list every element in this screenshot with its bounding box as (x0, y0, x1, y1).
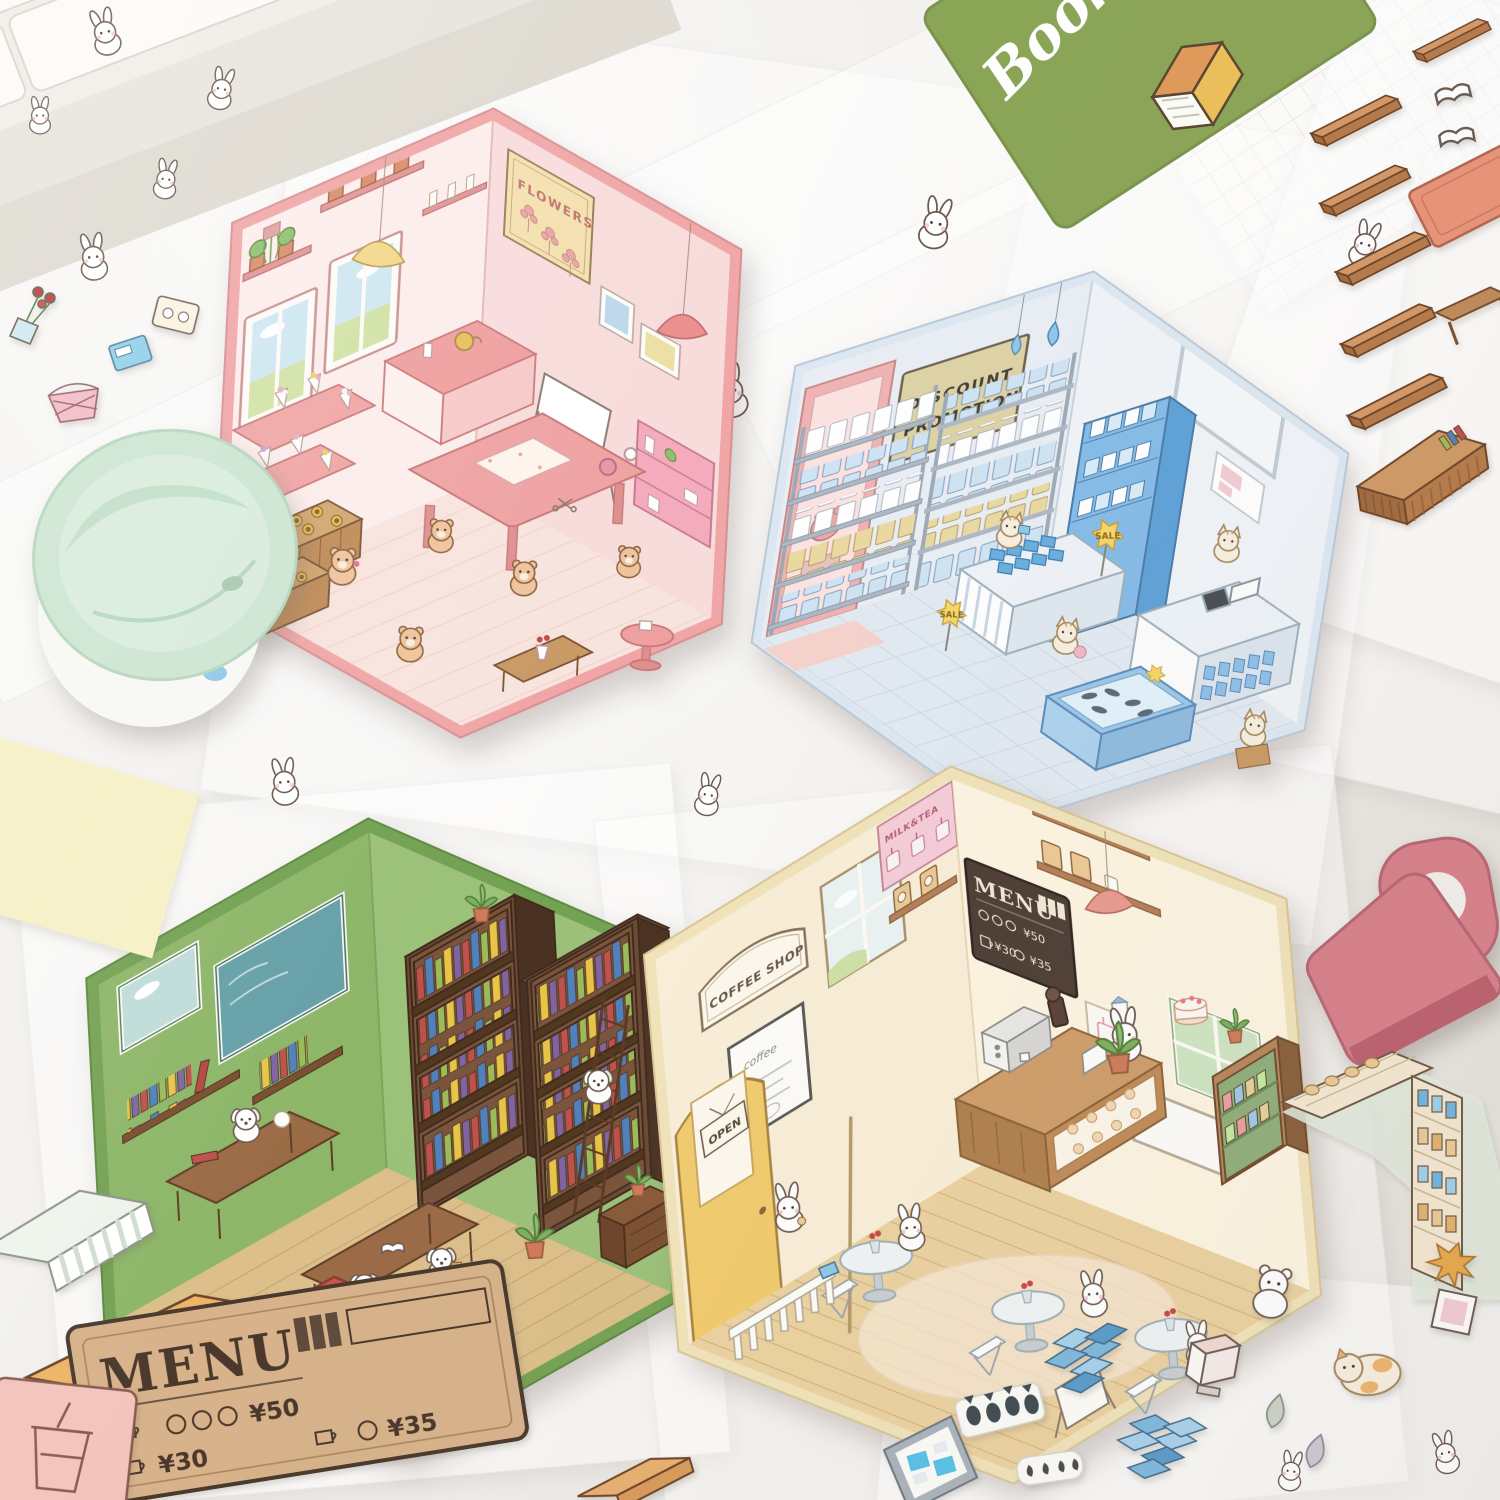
sale-text: SALE (1095, 532, 1121, 542)
hamster-sticker (1321, 1329, 1420, 1411)
blue-brick-sticker-1 (1031, 1305, 1140, 1405)
milk-tea-cup-sticker (0, 1373, 142, 1500)
desk-photo: Book 书 收纳 2张PET (0, 0, 1500, 1500)
blue-brick-sticker-2 (1099, 1393, 1221, 1500)
lantern-sticker (1174, 1320, 1251, 1410)
held-cup (797, 1217, 806, 1226)
desk-lamp (273, 1111, 290, 1128)
plank-stickers (1250, 0, 1500, 480)
table-sticker (1436, 282, 1500, 347)
ribbon-roll (624, 448, 637, 461)
pink-frame-sticker (1428, 1286, 1480, 1338)
rose-vase-sticker (8, 282, 72, 348)
orange-rug-sticker (1407, 143, 1500, 248)
cat-phone (1018, 525, 1030, 535)
sale-text: SALE (939, 610, 963, 620)
white-bear-sticker (1232, 1244, 1314, 1330)
wooden-l-shelf-sticker (1342, 415, 1500, 584)
pink-teapot (599, 459, 616, 476)
mint-cup-lid (10, 405, 330, 735)
